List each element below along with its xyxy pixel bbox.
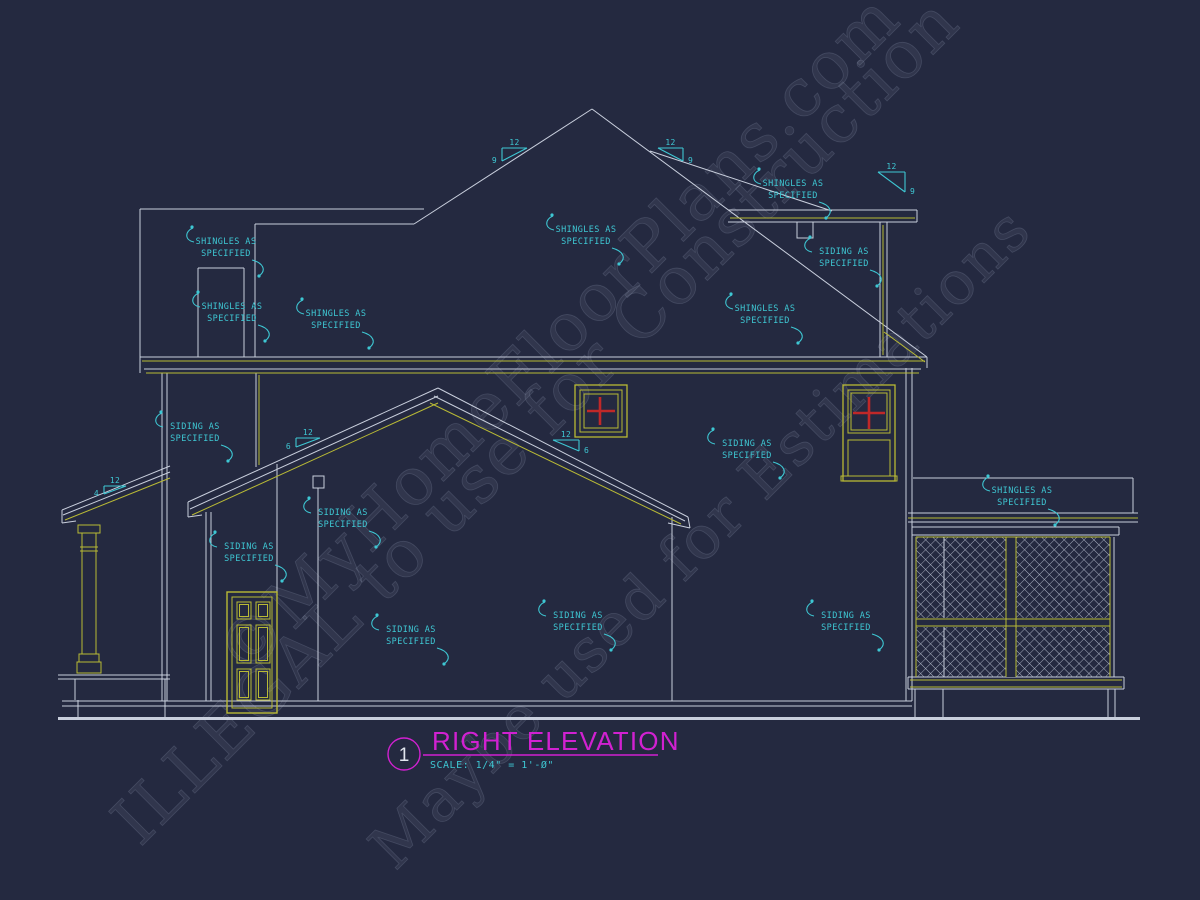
annotation-text: SHINGLES AS <box>306 309 367 319</box>
pitch-rise: 6 <box>286 442 291 451</box>
annotation-text: SPECIFIED <box>740 316 790 326</box>
pitch-rise: 9 <box>688 156 693 165</box>
elevation-drawing-sheet: ©MyHomeFloorPlans.comILLEGAL to use for … <box>0 0 1200 900</box>
annotation-text: SHINGLES AS <box>735 304 796 314</box>
drawing-title: RIGHT ELEVATION <box>432 726 680 756</box>
annotation-text: SIDING AS <box>386 625 436 635</box>
annotation-text: SPECIFIED <box>207 314 257 324</box>
annotation-text: SPECIFIED <box>311 321 361 331</box>
annotation-text: SPECIFIED <box>386 637 436 647</box>
annotation-text: SPECIFIED <box>201 249 251 259</box>
cad-canvas: ©MyHomeFloorPlans.comILLEGAL to use for … <box>0 0 1200 900</box>
pitch-run: 12 <box>561 430 571 439</box>
annotation-text: SHINGLES AS <box>556 225 617 235</box>
annotation-text: SIDING AS <box>819 247 869 257</box>
annotation-text: SPECIFIED <box>722 451 772 461</box>
annotation-text: SHINGLES AS <box>202 302 263 312</box>
pitch-run: 12 <box>886 162 896 171</box>
annotation-text: SPECIFIED <box>821 623 871 633</box>
annotation-text: SHINGLES AS <box>763 179 824 189</box>
annotation-text: SHINGLES AS <box>992 486 1053 496</box>
annotation-text: SPECIFIED <box>224 554 274 564</box>
pitch-run: 12 <box>303 428 313 437</box>
pitch-rise: 6 <box>584 446 589 455</box>
pitch-rise: 9 <box>910 187 915 196</box>
annotation-text: SPECIFIED <box>819 259 869 269</box>
annotation-text: SIDING AS <box>821 611 871 621</box>
annotation-text: SIDING AS <box>224 542 274 552</box>
annotation-text: SPECIFIED <box>170 434 220 444</box>
pitch-rise: 9 <box>492 156 497 165</box>
annotation-text: SPECIFIED <box>318 520 368 530</box>
annotation-text: SHINGLES AS <box>196 237 257 247</box>
annotation-text: SIDING AS <box>553 611 603 621</box>
porch-lattice <box>916 537 1110 677</box>
scale-note: SCALE: 1/4" = 1'-Ø" <box>430 759 554 771</box>
annotation-text: SPECIFIED <box>553 623 603 633</box>
lattice-center-post <box>1006 537 1016 677</box>
annotation-text: SIDING AS <box>722 439 772 449</box>
pitch-run: 12 <box>665 138 675 147</box>
annotation-text: SIDING AS <box>170 422 220 432</box>
annotation-text: SPECIFIED <box>768 191 818 201</box>
pitch-rise: 4 <box>94 489 99 498</box>
annotation-text: SPECIFIED <box>997 498 1047 508</box>
pitch-run: 12 <box>509 138 519 147</box>
pitch-run: 12 <box>110 476 120 485</box>
figure-number: 1 <box>399 745 410 766</box>
annotation-text: SIDING AS <box>318 508 368 518</box>
annotation-text: SPECIFIED <box>561 237 611 247</box>
ground-line <box>58 717 1140 720</box>
